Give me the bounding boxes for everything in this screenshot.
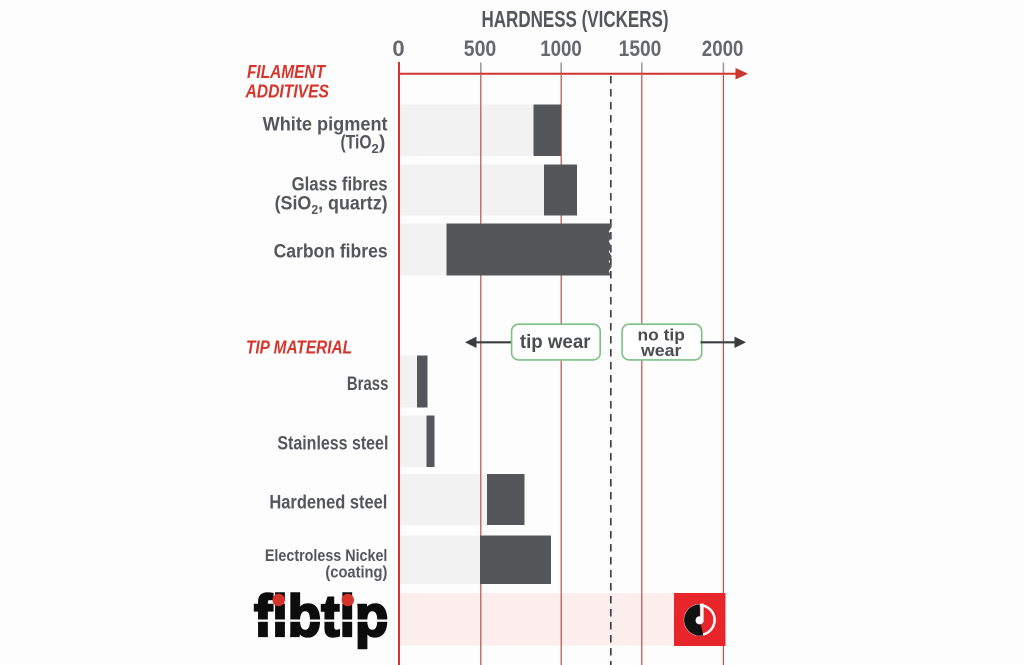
svg-text:ADDITIVES: ADDITIVES	[245, 82, 329, 102]
svg-text:500: 500	[464, 36, 497, 61]
svg-text:TIP MATERIAL: TIP MATERIAL	[246, 338, 352, 358]
svg-text:Stainless steel: Stainless steel	[277, 434, 388, 455]
svg-text:(SiO2, quartz): (SiO2, quartz)	[275, 194, 388, 218]
svg-text:tip wear: tip wear	[520, 332, 591, 353]
svg-text:(coating): (coating)	[325, 563, 387, 582]
svg-text:1500: 1500	[619, 36, 662, 61]
svg-text:Brass: Brass	[347, 374, 389, 395]
svg-text:Hardened steel: Hardened steel	[269, 493, 387, 514]
svg-text:FILAMENT: FILAMENT	[247, 62, 327, 82]
svg-text:1000: 1000	[540, 36, 582, 61]
svg-text:2: 2	[372, 141, 379, 156]
svg-text:Carbon fibres: Carbon fibres	[274, 242, 388, 263]
svg-text:): )	[379, 133, 385, 154]
svg-text:Glass fibres: Glass fibres	[292, 175, 388, 196]
svg-text:(TiO: (TiO	[341, 133, 372, 154]
svg-text:2000: 2000	[702, 36, 744, 61]
svg-text:0: 0	[392, 36, 404, 61]
svg-text:wear: wear	[640, 342, 682, 360]
svg-text:HARDNESS (VICKERS): HARDNESS (VICKERS)	[482, 6, 669, 32]
svg-text:fibtip: fibtip	[254, 584, 389, 649]
